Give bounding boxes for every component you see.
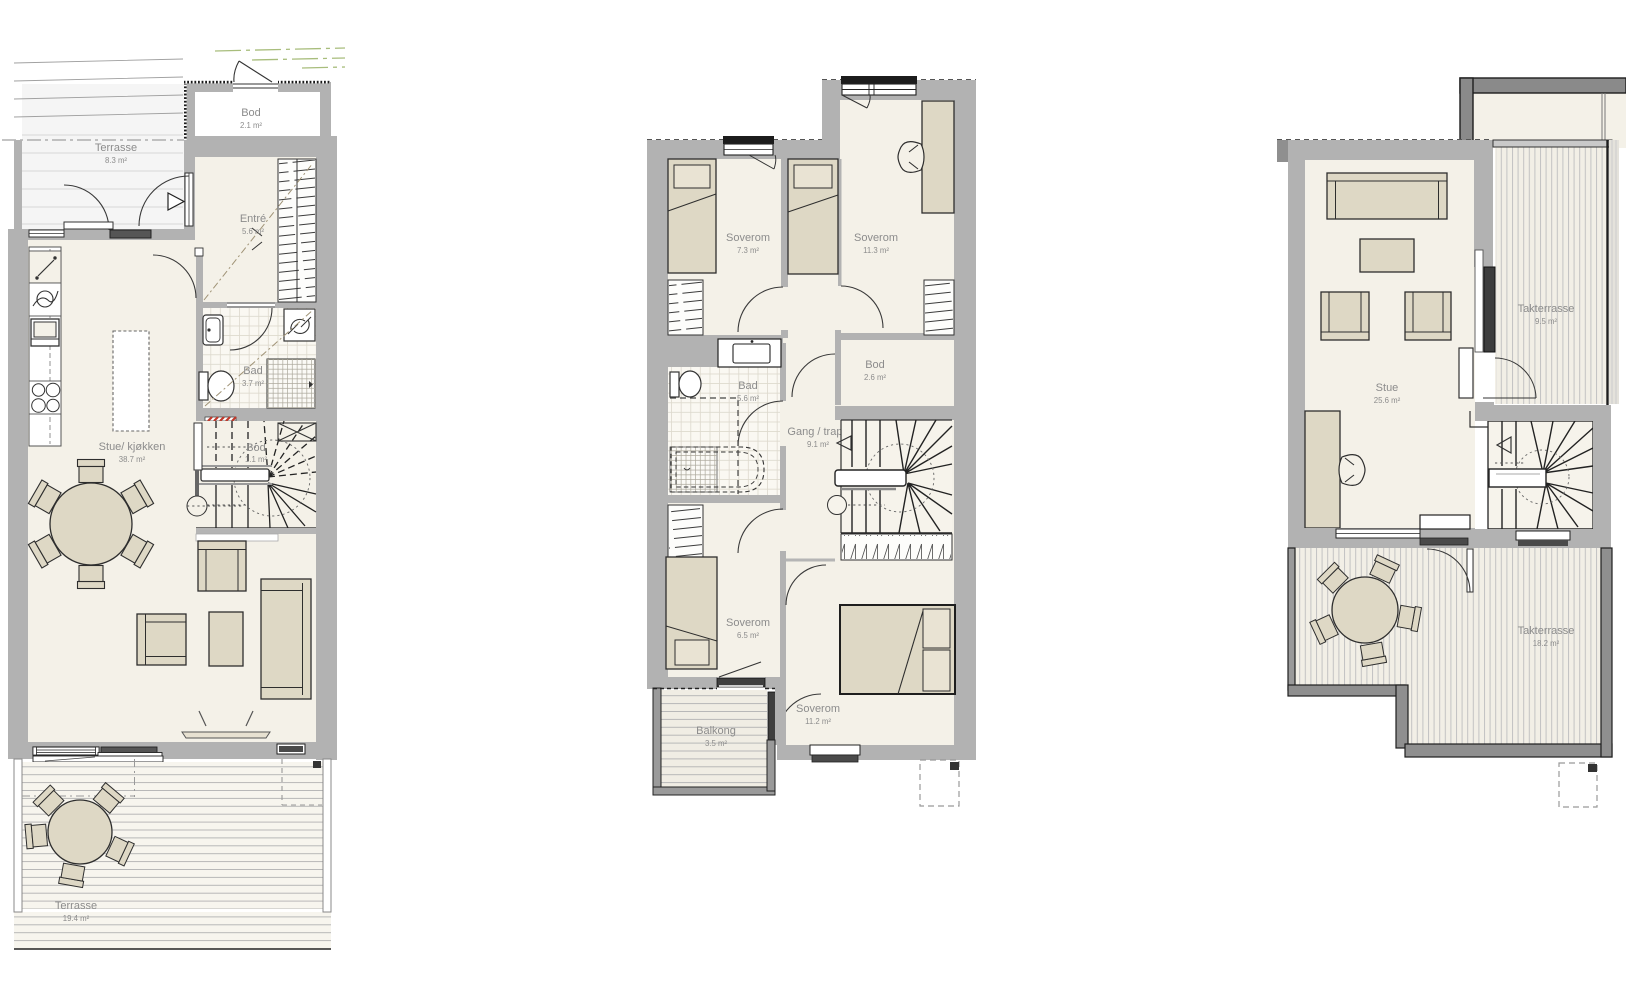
svg-text:Takterrasse: Takterrasse	[1518, 625, 1575, 637]
svg-text:Terrasse: Terrasse	[95, 142, 137, 154]
svg-text:Terrasse: Terrasse	[55, 900, 97, 912]
svg-text:18.2 m²: 18.2 m²	[1533, 639, 1560, 648]
svg-text:Entré: Entré	[240, 213, 266, 225]
svg-text:Stue: Stue	[1376, 382, 1399, 394]
svg-text:9.5 m²: 9.5 m²	[1535, 317, 1557, 326]
svg-text:Soverom: Soverom	[854, 232, 898, 244]
svg-text:2.6 m²: 2.6 m²	[864, 373, 886, 382]
svg-text:38.7 m²: 38.7 m²	[119, 455, 146, 464]
svg-text:3.7 m²: 3.7 m²	[242, 379, 264, 388]
svg-text:11.2 m²: 11.2 m²	[805, 717, 831, 726]
svg-text:11.3 m²: 11.3 m²	[863, 246, 889, 255]
svg-text:Soverom: Soverom	[726, 617, 770, 629]
svg-text:1.1 m²: 1.1 m²	[245, 455, 267, 464]
svg-text:9.1 m²: 9.1 m²	[807, 440, 829, 449]
svg-text:Bad: Bad	[738, 380, 758, 392]
svg-text:8.3 m²: 8.3 m²	[105, 156, 127, 165]
svg-text:25.6 m²: 25.6 m²	[1374, 396, 1401, 405]
svg-text:Bod: Bod	[241, 107, 261, 119]
svg-text:Bod: Bod	[865, 359, 885, 371]
svg-text:3.5 m²: 3.5 m²	[705, 739, 727, 748]
svg-text:2.1 m²: 2.1 m²	[240, 121, 262, 130]
svg-text:Balkong: Balkong	[696, 725, 736, 737]
svg-text:Bad: Bad	[243, 365, 263, 377]
svg-text:7.3 m²: 7.3 m²	[737, 246, 759, 255]
svg-text:Gang / trapp: Gang / trapp	[787, 426, 848, 438]
svg-text:Takterrasse: Takterrasse	[1518, 303, 1575, 315]
svg-text:6.5 m²: 6.5 m²	[737, 631, 759, 640]
svg-text:19.4 m²: 19.4 m²	[63, 914, 90, 923]
svg-text:Stue/ kjøkken: Stue/ kjøkken	[99, 441, 166, 453]
svg-text:Soverom: Soverom	[726, 232, 770, 244]
svg-text:5.6 m²: 5.6 m²	[242, 227, 264, 236]
svg-text:5.6 m²: 5.6 m²	[737, 394, 759, 403]
svg-text:Bod: Bod	[246, 442, 266, 454]
svg-text:Soverom: Soverom	[796, 703, 840, 715]
